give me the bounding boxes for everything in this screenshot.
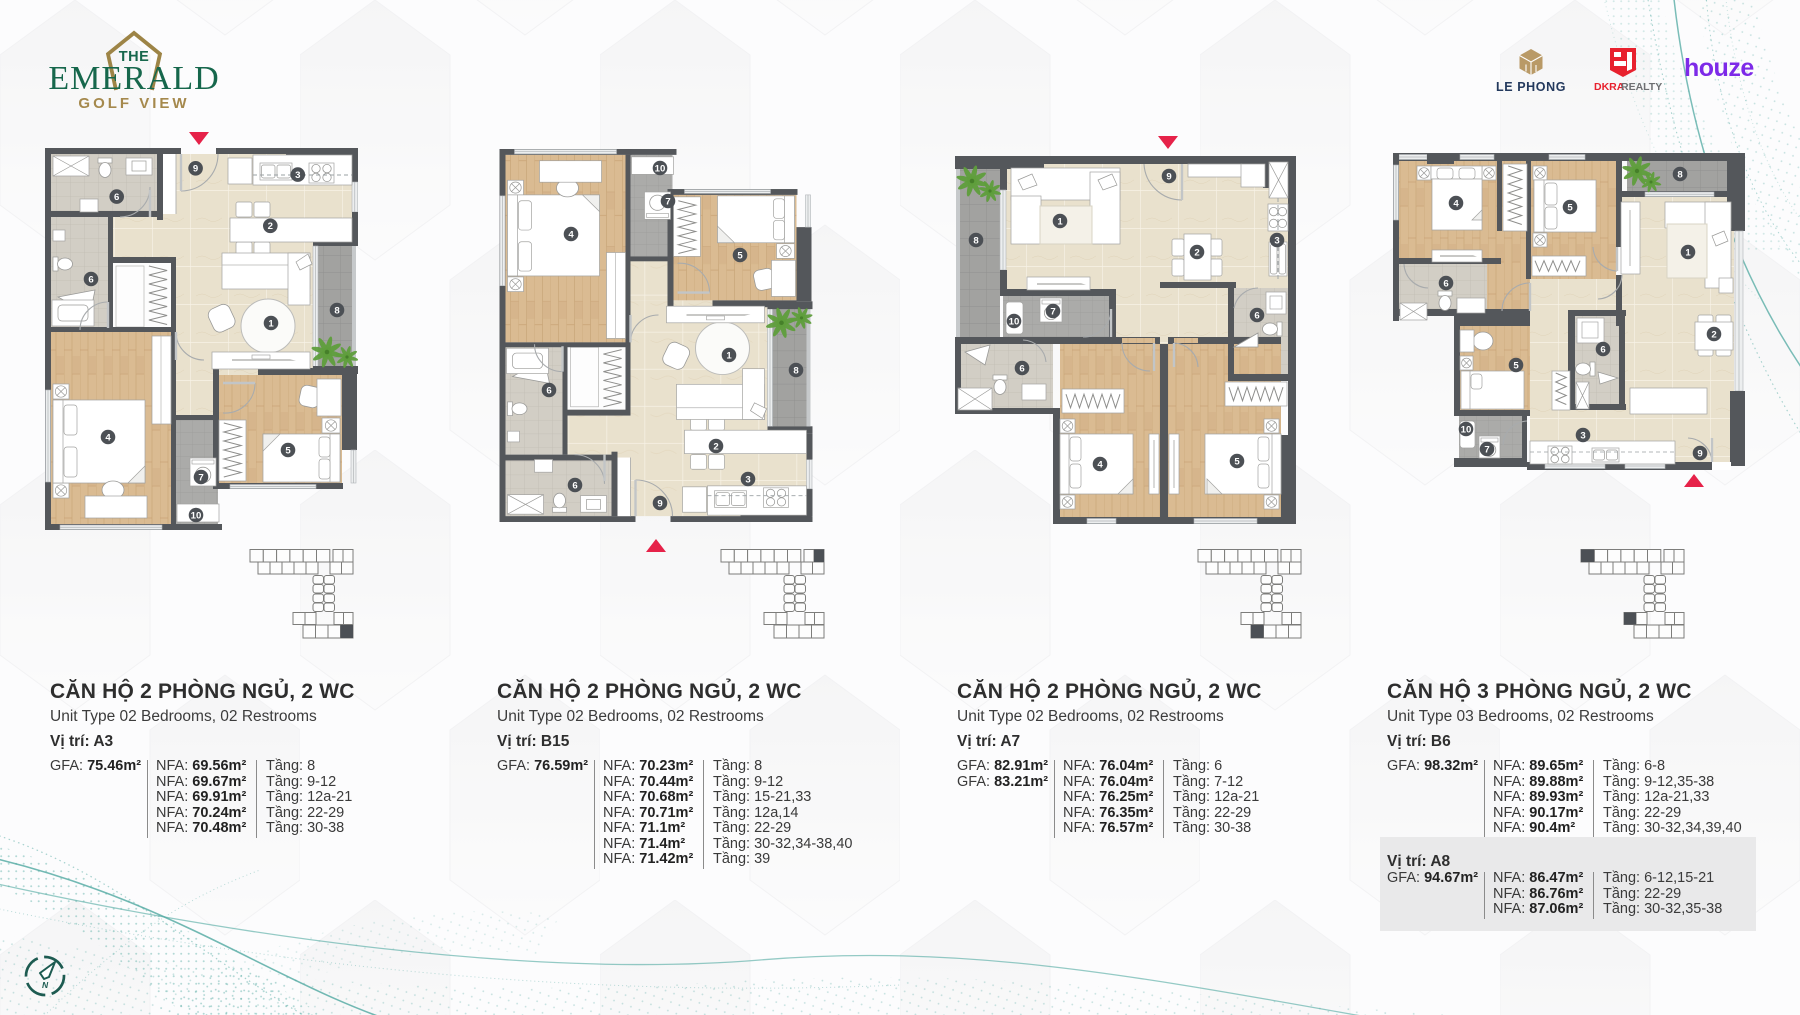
svg-text:6: 6 (546, 385, 551, 396)
svg-text:1: 1 (1057, 216, 1063, 227)
svg-text:4: 4 (1453, 198, 1459, 209)
svg-text:5: 5 (1513, 360, 1519, 371)
svg-text:6: 6 (1019, 363, 1024, 374)
svg-text:6: 6 (1443, 278, 1448, 289)
svg-text:4: 4 (1097, 459, 1103, 470)
svg-text:7: 7 (665, 196, 670, 207)
svg-text:7: 7 (1484, 444, 1489, 455)
svg-text:4: 4 (105, 432, 111, 443)
svg-text:7: 7 (198, 472, 203, 483)
svg-text:4: 4 (568, 229, 574, 240)
svg-text:2: 2 (1711, 329, 1716, 340)
svg-text:3: 3 (295, 170, 300, 181)
svg-text:10: 10 (191, 510, 202, 521)
svg-text:3: 3 (1274, 235, 1279, 246)
svg-text:8: 8 (793, 365, 799, 376)
svg-text:1: 1 (268, 318, 274, 329)
svg-text:9: 9 (1697, 448, 1702, 459)
svg-text:5: 5 (285, 445, 291, 456)
svg-text:8: 8 (334, 305, 340, 316)
svg-text:LE PHONG: LE PHONG (1496, 80, 1566, 94)
svg-text:7: 7 (1050, 306, 1055, 317)
svg-text:5: 5 (1234, 456, 1240, 467)
svg-text:6: 6 (114, 192, 119, 203)
svg-text:9: 9 (1166, 171, 1171, 182)
svg-text:10: 10 (1009, 316, 1020, 327)
svg-text:1: 1 (726, 350, 732, 361)
svg-text:8: 8 (1677, 169, 1683, 180)
svg-text:3: 3 (1580, 430, 1585, 441)
svg-text:EMERALD: EMERALD (48, 60, 219, 97)
svg-text:3: 3 (745, 474, 750, 485)
svg-text:6: 6 (1254, 310, 1259, 321)
svg-text:6: 6 (1600, 344, 1605, 355)
svg-text:N: N (42, 980, 49, 990)
svg-text:1: 1 (1685, 247, 1691, 258)
svg-text:GOLF VIEW: GOLF VIEW (78, 95, 189, 112)
svg-text:2: 2 (1194, 247, 1199, 258)
svg-text:6: 6 (572, 480, 577, 491)
svg-text:9: 9 (657, 498, 662, 509)
svg-text:5: 5 (1567, 202, 1573, 213)
svg-text:9: 9 (193, 164, 198, 175)
svg-text:5: 5 (737, 250, 743, 261)
svg-text:REALTY: REALTY (1621, 81, 1662, 93)
svg-text:2: 2 (268, 221, 273, 232)
svg-text:houze: houze (1684, 54, 1754, 82)
svg-text:10: 10 (1461, 424, 1472, 435)
svg-text:10: 10 (655, 163, 666, 174)
svg-text:8: 8 (973, 235, 979, 246)
svg-text:2: 2 (713, 441, 718, 452)
svg-text:6: 6 (88, 274, 93, 285)
